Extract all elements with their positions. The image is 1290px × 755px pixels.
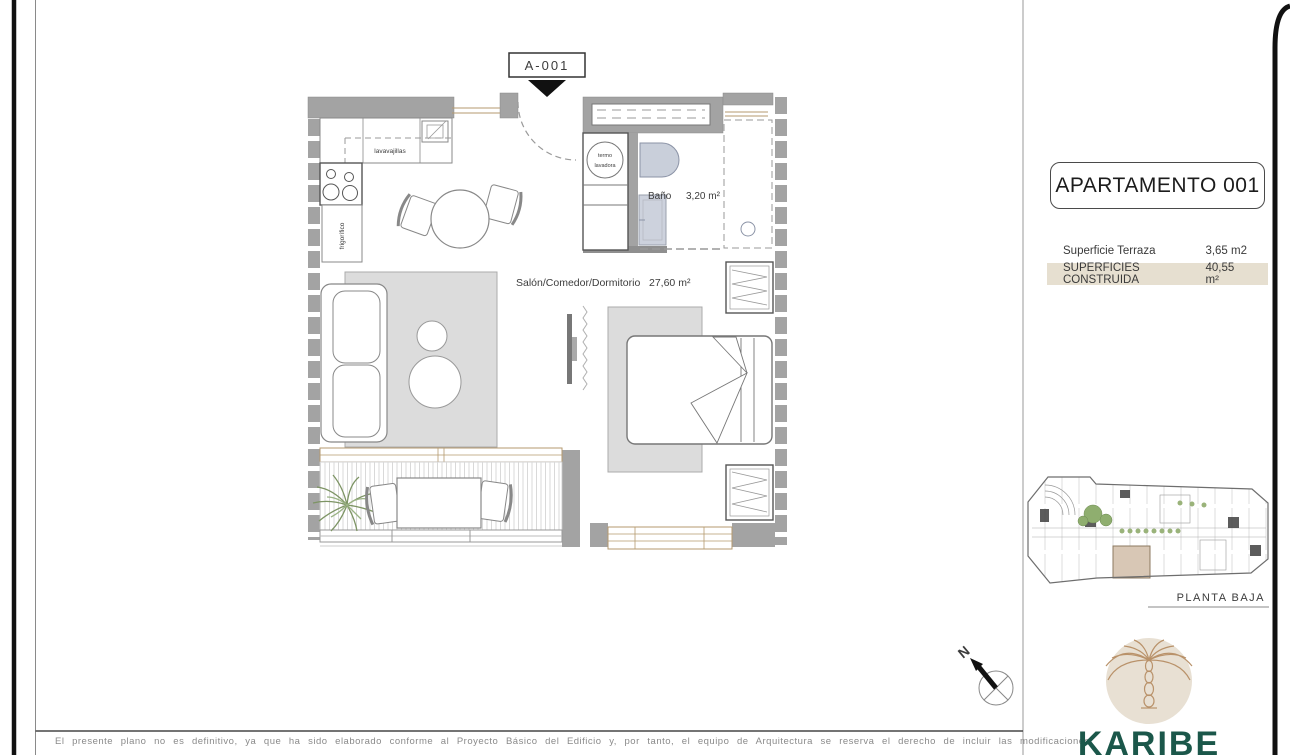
keyplan-highlighted-unit	[1113, 546, 1150, 578]
apartment-title-box: APARTAMENTO 001	[1050, 162, 1265, 209]
surface-label: Superficie Terraza	[1063, 245, 1155, 257]
bed-icon	[627, 336, 772, 444]
bath-area-label: 3,20 m²	[686, 191, 721, 202]
north-compass-icon: N	[955, 643, 1013, 705]
bath-room-label: Baño	[648, 191, 672, 202]
surface-value: 3,65 m2	[1205, 245, 1247, 257]
keyplan: PLANTA BAJA	[1028, 477, 1269, 607]
bedroom-window	[608, 527, 732, 549]
surface-value: 40,55 m²	[1206, 262, 1247, 286]
coffee-table-icon	[409, 356, 461, 408]
curtain-icon	[583, 306, 587, 390]
terrace-table-icon	[397, 478, 481, 528]
surface-label: SUPERFICIES CONSTRUIDA	[1063, 262, 1206, 286]
heater-label: termo	[598, 153, 612, 159]
callout-a001: A-001	[509, 53, 585, 97]
keyplan-caption: PLANTA BAJA	[1177, 592, 1265, 604]
utility-closet: termo lavadora	[583, 133, 628, 250]
tv-icon	[567, 314, 572, 384]
washer-label: lavadora	[594, 163, 616, 169]
callout-arrow-icon	[528, 80, 566, 97]
apartment-title: APARTAMENTO 001	[1055, 174, 1259, 198]
wardrobe-bottom	[726, 465, 773, 520]
brand-logo	[1106, 638, 1192, 724]
kitchen: lavavajillas frigorífico	[320, 118, 452, 262]
fridge-label: frigorífico	[339, 222, 346, 249]
bathroom: Baño 3,20 m²	[639, 120, 772, 249]
washer-icon	[587, 142, 623, 178]
toilet-icon	[640, 143, 679, 177]
callout-label: A-001	[525, 58, 570, 73]
compass-n-label: N	[955, 643, 973, 662]
logo-circle	[1106, 638, 1192, 724]
terrace-railing	[320, 530, 562, 546]
bedroom-area	[608, 262, 773, 549]
wardrobe-top	[726, 262, 773, 313]
dining-table-icon	[431, 190, 489, 248]
brand-wordmark: KARIBE	[1058, 727, 1240, 755]
side-table-icon	[417, 321, 447, 351]
disclaimer-text: El presente plano no es definitivo, ya q…	[55, 736, 1090, 747]
drawing-canvas: A-001 lavavajillas	[0, 0, 1290, 755]
surface-row-terraza: Superficie Terraza 3,65 m2	[1063, 245, 1247, 257]
surface-row-construida: SUPERFICIES CONSTRUIDA 40,55 m²	[1047, 263, 1268, 285]
salon-area-label: 27,60 m²	[649, 277, 691, 289]
dishwasher-label: lavavajillas	[374, 148, 406, 155]
plan-sheet: A-001 lavavajillas	[0, 0, 1290, 755]
sliding-door	[320, 448, 562, 462]
salon-room-label: Salón/Comedor/Dormitorio	[516, 277, 640, 289]
terrace	[313, 448, 562, 546]
